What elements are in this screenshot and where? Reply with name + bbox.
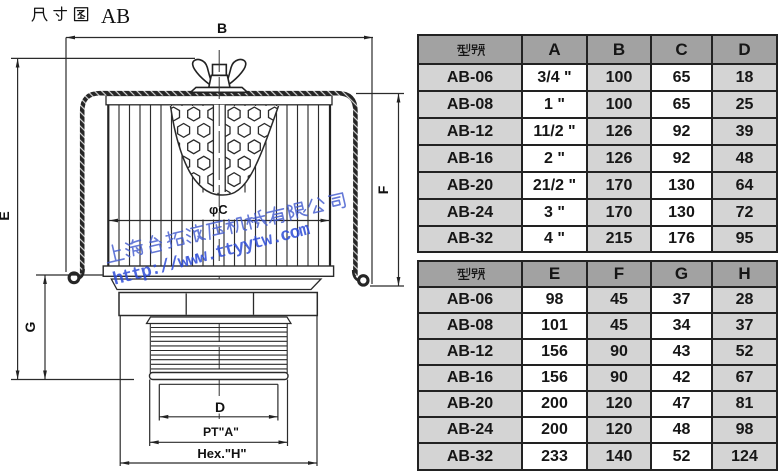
svg-text:D: D xyxy=(215,399,225,415)
svg-text:B: B xyxy=(217,20,227,36)
svg-text:PT"A": PT"A" xyxy=(203,425,239,439)
svg-text:AB: AB xyxy=(101,4,130,28)
svg-text:G: G xyxy=(22,321,38,332)
svg-text:φC: φC xyxy=(209,202,228,217)
svg-text:Hex."H": Hex."H" xyxy=(197,446,246,461)
svg-text:E: E xyxy=(0,211,12,220)
svg-text:F: F xyxy=(375,185,391,194)
